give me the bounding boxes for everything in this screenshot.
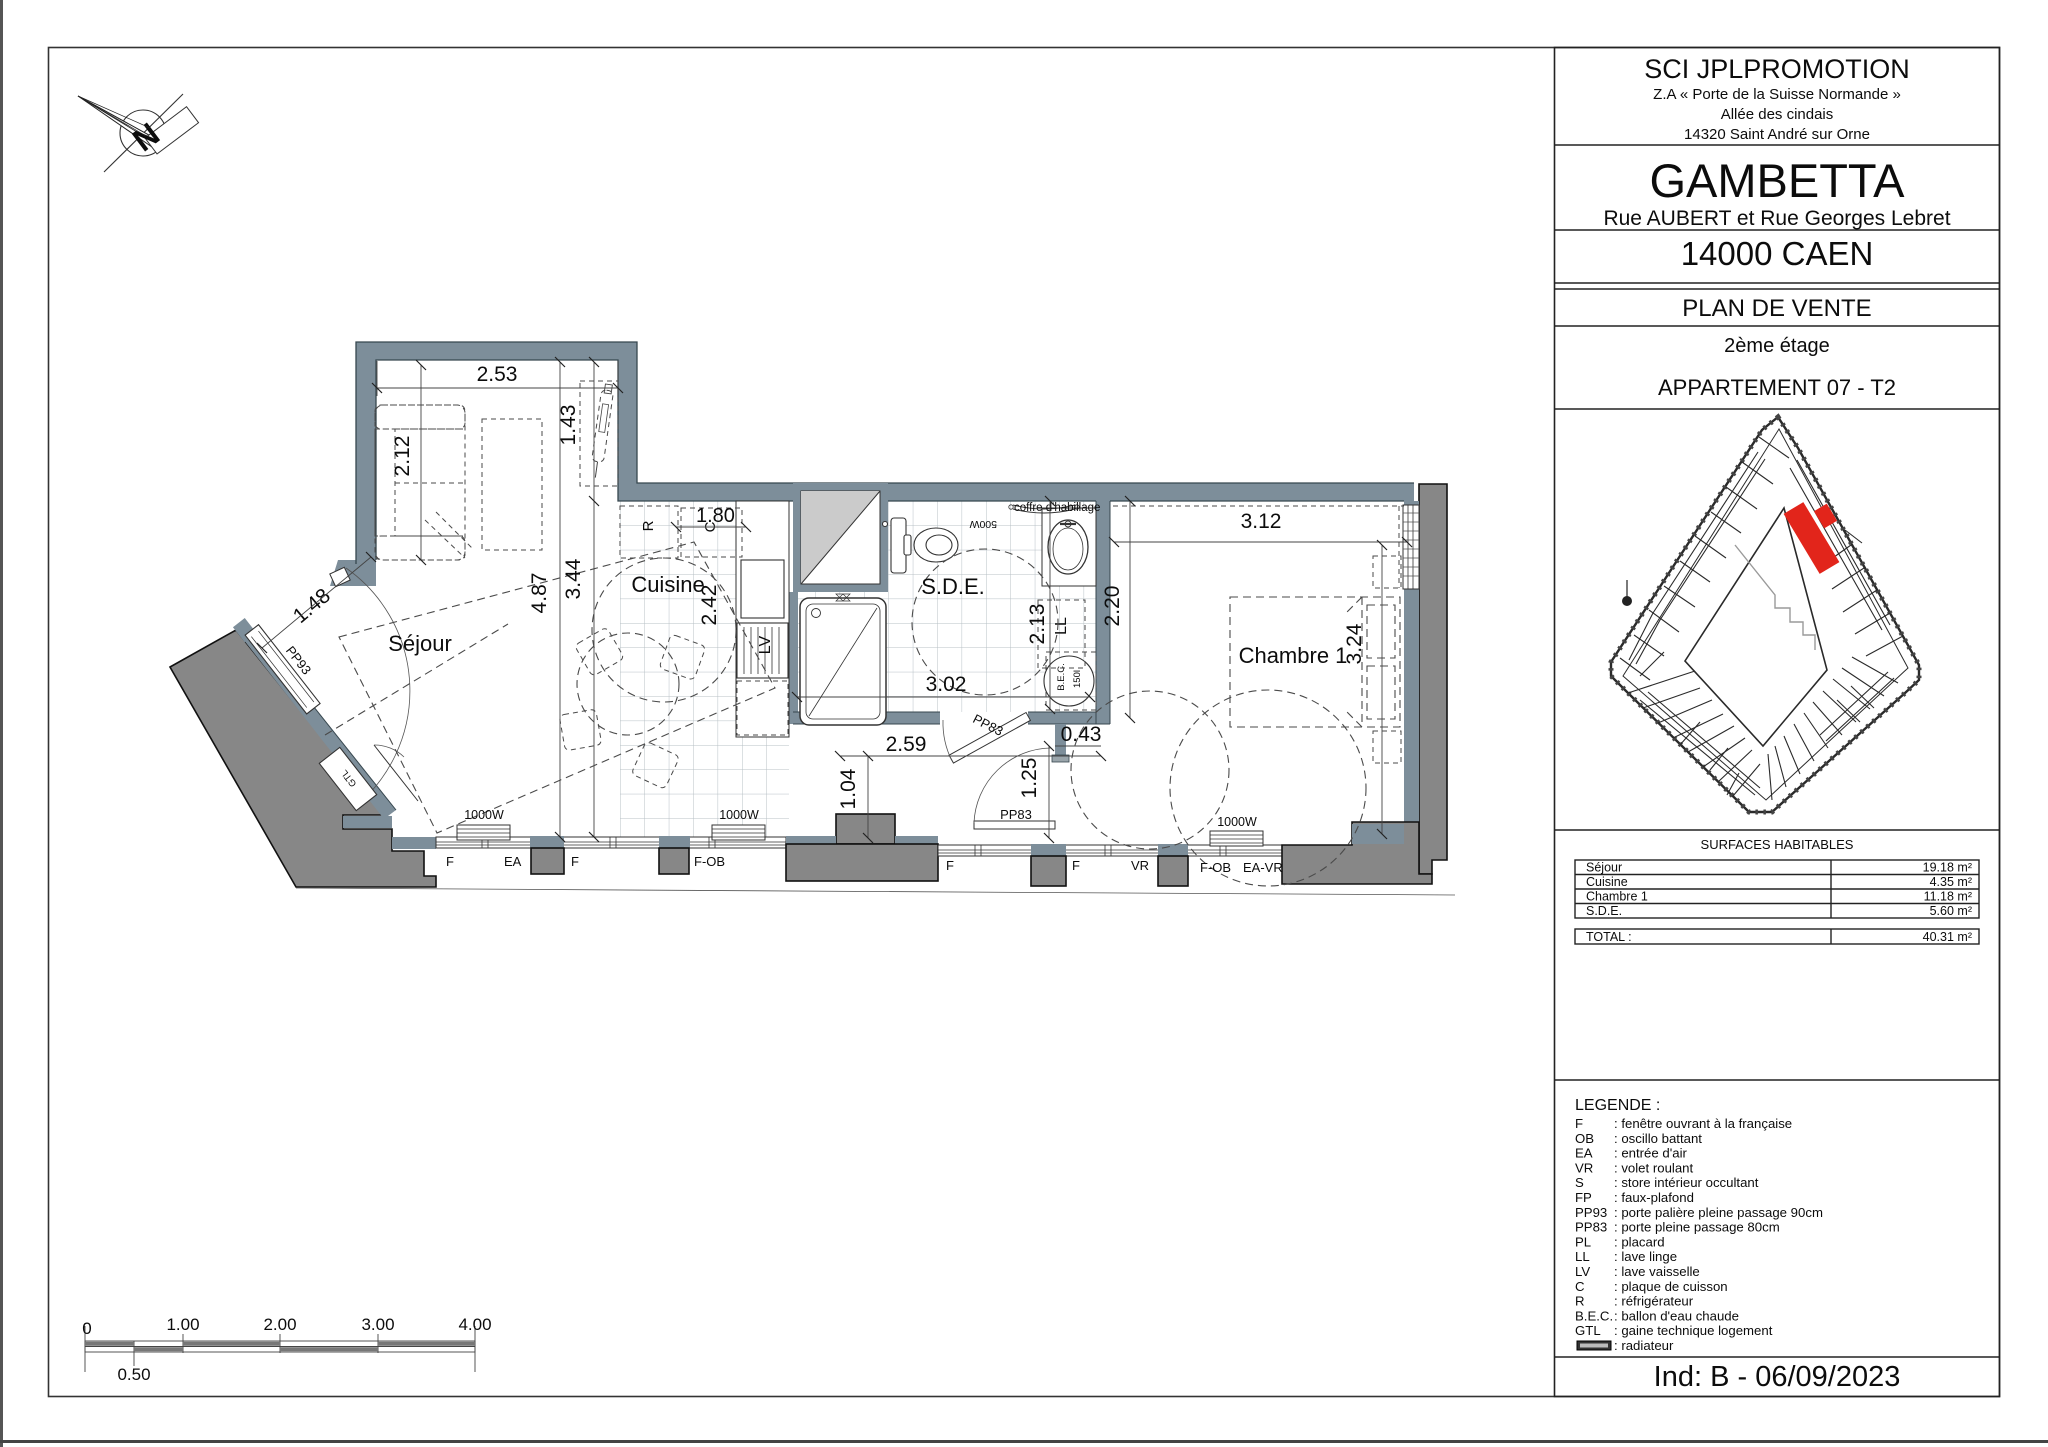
svg-text:: réfrigérateur: : réfrigérateur: [1614, 1294, 1694, 1309]
svg-text:3.00: 3.00: [361, 1315, 394, 1334]
svg-text:EA: EA: [504, 854, 522, 869]
svg-text:3.24: 3.24: [1343, 623, 1366, 664]
svg-text:PP93: PP93: [1575, 1205, 1607, 1220]
svg-text:SURFACES HABITABLES: SURFACES HABITABLES: [1701, 837, 1854, 852]
svg-text:500W: 500W: [969, 518, 997, 530]
svg-text:5.60 m²: 5.60 m²: [1930, 904, 1972, 918]
svg-text:0.50: 0.50: [117, 1365, 150, 1384]
svg-text:2.59: 2.59: [886, 733, 927, 756]
svg-text:2.42: 2.42: [698, 585, 721, 626]
svg-text:: faux-plafond: : faux-plafond: [1614, 1190, 1694, 1205]
svg-text:LL: LL: [1053, 617, 1070, 635]
svg-text:LL: LL: [1575, 1249, 1590, 1264]
svg-text:0.43: 0.43: [1061, 723, 1102, 746]
svg-text:F: F: [446, 854, 454, 869]
svg-text:3.12: 3.12: [1241, 510, 1282, 533]
svg-text:14000 CAEN: 14000 CAEN: [1681, 235, 1874, 272]
svg-text:GTL: GTL: [1575, 1323, 1601, 1338]
svg-text:3.02: 3.02: [926, 673, 967, 696]
svg-text:: oscillo battant: : oscillo battant: [1614, 1131, 1702, 1146]
svg-text:14320 Saint André sur Orne: 14320 Saint André sur Orne: [1684, 126, 1870, 143]
svg-text:S: S: [1575, 1175, 1584, 1190]
svg-text:C: C: [1575, 1279, 1585, 1294]
svg-text:Cuisine: Cuisine: [1586, 875, 1628, 889]
svg-text:VR: VR: [1575, 1160, 1593, 1175]
svg-text:R: R: [1575, 1294, 1585, 1309]
svg-text:F-OB: F-OB: [1200, 860, 1231, 875]
svg-text:4.87: 4.87: [528, 573, 551, 614]
svg-text:Allée des cindais: Allée des cindais: [1721, 106, 1834, 123]
svg-text:: fenêtre ouvrant à la françai: : fenêtre ouvrant à la française: [1614, 1116, 1792, 1131]
svg-text:R: R: [640, 520, 657, 531]
svg-text:B.E.C.: B.E.C.: [1575, 1308, 1613, 1323]
svg-text:3.44: 3.44: [562, 558, 585, 599]
svg-text:S.D.E.: S.D.E.: [1586, 904, 1622, 918]
svg-text:Chambre 1: Chambre 1: [1239, 643, 1348, 668]
svg-text:: porte palière pleine passage: : porte palière pleine passage 90cm: [1614, 1205, 1823, 1220]
svg-text:: lave vaisselle: : lave vaisselle: [1614, 1264, 1700, 1279]
svg-text:1.43: 1.43: [557, 405, 580, 446]
svg-text:S.D.E.: S.D.E.: [921, 574, 985, 599]
svg-text:LV: LV: [1575, 1264, 1590, 1279]
svg-text:: placard: : placard: [1614, 1234, 1665, 1249]
svg-text:EA: EA: [1575, 1146, 1593, 1161]
svg-text:4.00: 4.00: [458, 1315, 491, 1334]
svg-text:: plaque de cuisson: : plaque de cuisson: [1614, 1279, 1728, 1294]
svg-text:: ballon d'eau chaude: : ballon d'eau chaude: [1614, 1308, 1739, 1323]
svg-text:PL: PL: [1575, 1234, 1591, 1249]
svg-text:1.00: 1.00: [166, 1315, 199, 1334]
svg-text:PP83: PP83: [1575, 1220, 1607, 1235]
svg-text:Chambre 1: Chambre 1: [1586, 890, 1648, 904]
svg-text:150l: 150l: [1072, 670, 1083, 688]
svg-text:F: F: [1072, 858, 1080, 873]
svg-text:Séjour: Séjour: [1586, 861, 1622, 875]
svg-text:OB: OB: [1575, 1131, 1594, 1146]
svg-text:: gaine technique logement: : gaine technique logement: [1614, 1323, 1773, 1338]
svg-text:1.25: 1.25: [1018, 758, 1041, 799]
svg-text:TOTAL :: TOTAL :: [1586, 930, 1632, 944]
svg-text:1000W: 1000W: [1217, 815, 1257, 829]
svg-text:19.18 m²: 19.18 m²: [1923, 861, 1972, 875]
svg-text:Cuisine: Cuisine: [631, 572, 704, 597]
svg-text:B.E.C.: B.E.C.: [1056, 663, 1067, 690]
svg-text:1.04: 1.04: [837, 768, 860, 809]
svg-text:11.18 m²: 11.18 m²: [1924, 890, 1972, 904]
svg-text:F: F: [946, 858, 954, 873]
svg-text:2ème étage: 2ème étage: [1724, 335, 1830, 357]
svg-text:1000W: 1000W: [719, 808, 759, 822]
svg-text:: lave linge: : lave linge: [1614, 1249, 1677, 1264]
svg-text:APPARTEMENT 07 - T2: APPARTEMENT 07 - T2: [1658, 375, 1896, 400]
svg-text:coffre d'habillage: coffre d'habillage: [1014, 502, 1100, 514]
svg-text:PP83: PP83: [1000, 807, 1032, 822]
svg-text:: volet roulant: : volet roulant: [1614, 1160, 1694, 1175]
svg-text:1.80: 1.80: [696, 505, 735, 527]
svg-text:Séjour: Séjour: [388, 631, 452, 656]
svg-text:SCI JPLPROMOTION: SCI JPLPROMOTION: [1644, 54, 1910, 84]
svg-text:1000W: 1000W: [464, 808, 504, 822]
svg-text:Z.A « Porte de la Suisse Norma: Z.A « Porte de la Suisse Normande »: [1653, 86, 1901, 103]
svg-text:: porte pleine passage 80cm: : porte pleine passage 80cm: [1614, 1220, 1780, 1235]
svg-text:: store intérieur occultant: : store intérieur occultant: [1614, 1175, 1759, 1190]
svg-text:GAMBETTA: GAMBETTA: [1649, 154, 1905, 207]
svg-text:EA-VR: EA-VR: [1243, 860, 1283, 875]
svg-text:2.53: 2.53: [477, 363, 518, 386]
svg-text:2.20: 2.20: [1101, 586, 1124, 627]
svg-text:F: F: [1575, 1116, 1583, 1131]
svg-text:4.35 m²: 4.35 m²: [1930, 875, 1972, 889]
svg-text:LEGENDE :: LEGENDE :: [1575, 1097, 1660, 1114]
svg-text:F-OB: F-OB: [694, 854, 725, 869]
svg-text:: entrée d'air: : entrée d'air: [1614, 1146, 1688, 1161]
svg-text:: radiateur: : radiateur: [1614, 1338, 1674, 1353]
svg-text:40.31 m²: 40.31 m²: [1923, 930, 1972, 944]
svg-text:0: 0: [82, 1319, 91, 1338]
svg-text:FP: FP: [1575, 1190, 1592, 1205]
svg-text:Ind: B - 06/09/2023: Ind: B - 06/09/2023: [1654, 1361, 1901, 1393]
svg-text:2.00: 2.00: [263, 1315, 296, 1334]
svg-text:F: F: [571, 854, 579, 869]
svg-text:VR: VR: [1131, 858, 1149, 873]
svg-text:Rue AUBERT et Rue Georges Lebr: Rue AUBERT et Rue Georges Lebret: [1603, 207, 1950, 230]
svg-text:LV: LV: [757, 635, 774, 654]
svg-text:2.13: 2.13: [1026, 604, 1049, 645]
svg-text:PLAN DE VENTE: PLAN DE VENTE: [1682, 295, 1871, 322]
svg-text:2.12: 2.12: [391, 436, 414, 477]
